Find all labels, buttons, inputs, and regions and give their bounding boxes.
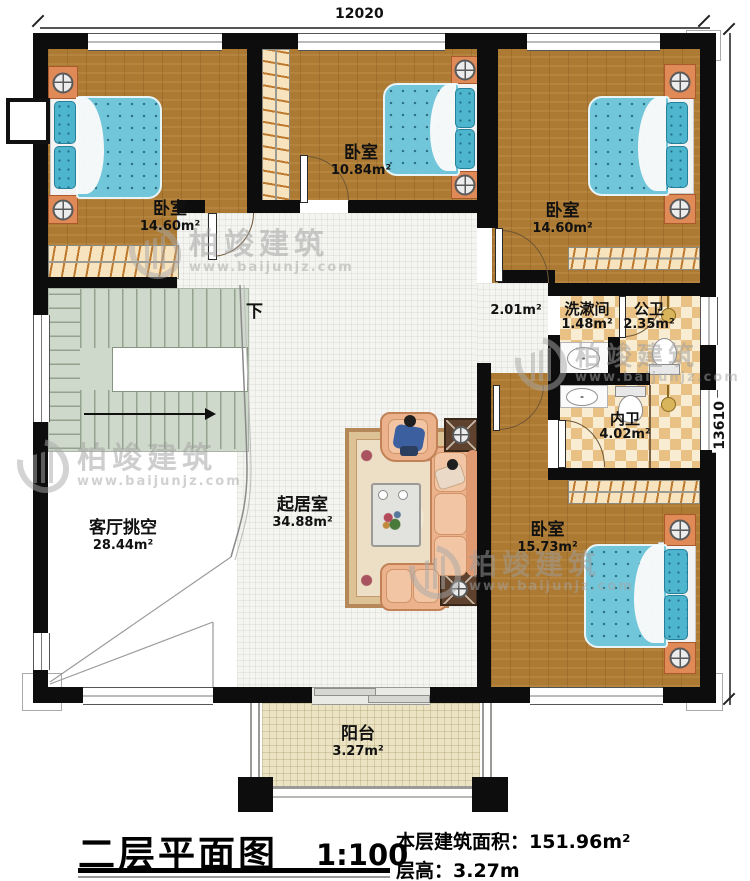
window-right-publicwc <box>700 297 718 345</box>
wall-bedroom-tr-west <box>477 49 498 228</box>
floor-plan-page: 12020 13610 <box>0 0 750 881</box>
window-top-3 <box>527 33 660 51</box>
lamp-icon <box>452 426 470 444</box>
room-area: 3.27m² <box>332 745 383 760</box>
ensuite-door-leaf <box>558 420 566 468</box>
window-bottom-void <box>83 687 213 705</box>
wall-bathroom-north <box>548 283 716 296</box>
shower-head-icon <box>661 397 676 412</box>
nightstand <box>48 66 78 99</box>
room-label-public-wc: 公卫 2.35m² <box>614 301 684 333</box>
room-label-bedroom-tm: 卧室 10.84m² <box>315 144 407 178</box>
nightstand <box>664 642 696 674</box>
wall-bathroom-middle <box>548 373 650 385</box>
side-table <box>444 418 478 452</box>
room-area: 2.35m² <box>623 318 674 333</box>
person-legs <box>400 446 418 456</box>
sofa-cushion <box>434 536 467 576</box>
balcony-door-panel <box>368 695 430 703</box>
nightstand <box>664 514 696 546</box>
room-area: 14.60m² <box>532 222 592 237</box>
wall-bedrooms-tl-tm <box>247 49 262 200</box>
ensuite-sink <box>566 388 598 406</box>
lamp-icon <box>455 175 476 196</box>
room-area: 4.02m² <box>599 428 650 443</box>
pillow <box>54 101 76 144</box>
room-label-ensuite: 内卫 4.02m² <box>589 411 661 443</box>
washroom-sink <box>567 347 600 370</box>
bedroom-tm-door-leaf <box>300 155 308 203</box>
room-label-washroom: 洗漱间 1.48m² <box>550 301 624 333</box>
room-label-bedroom-br: 卧室 15.73m² <box>500 521 595 555</box>
wall-exterior-right <box>700 33 716 703</box>
window-top-1 <box>88 33 222 51</box>
room-name: 卧室 <box>153 200 187 220</box>
stair-down-label: 下 <box>246 303 263 323</box>
side-table <box>440 572 478 606</box>
table-flowers <box>381 508 405 532</box>
public-wc-toilet-bowl <box>652 338 677 367</box>
room-name: 卧室 <box>344 144 378 164</box>
sofa-cushion <box>434 493 467 535</box>
dimension-right: 13610 <box>712 398 728 453</box>
wall-passage-west <box>477 363 491 687</box>
cup <box>398 490 408 500</box>
wall-bedroom-tl-south <box>33 277 177 288</box>
wall-ensuite-west-stub <box>548 385 560 420</box>
exterior-flue-box <box>6 98 50 144</box>
room-label-void: 客厅挑空 28.44m² <box>70 519 176 553</box>
lamp-icon <box>670 648 691 669</box>
room-name: 内卫 <box>610 411 640 428</box>
floor-height-value: 3.27m <box>453 860 520 881</box>
sofa-cushion <box>413 569 439 603</box>
lamp-icon <box>450 580 468 598</box>
room-label-bedroom-tr: 卧室 14.60m² <box>515 202 610 236</box>
wall-washroom-publicwc-stub-top <box>608 283 620 296</box>
room-area: 14.60m² <box>140 220 200 235</box>
room-label-living: 起居室 34.88m² <box>255 496 350 530</box>
lamp-icon <box>455 60 476 81</box>
lamp-icon <box>53 72 74 93</box>
room-name: 公卫 <box>634 301 664 318</box>
pillow <box>664 549 688 594</box>
nightstand <box>664 64 696 99</box>
room-name: 起居室 <box>277 496 328 516</box>
floor-area-line: 本层建筑面积：151.96m² <box>396 827 630 854</box>
bedroom-tr-door-leaf <box>495 228 503 282</box>
room-label-corridor: 2.01m² <box>480 304 552 319</box>
floor-height-label: 层高： <box>396 860 453 881</box>
lamp-icon <box>670 71 691 92</box>
pillow <box>666 102 688 144</box>
room-area: 1.48m² <box>561 318 612 333</box>
balcony-post-right <box>472 777 508 812</box>
wall-washroom-publicwc-stub-bottom <box>608 337 620 375</box>
public-wc-toilet-tank <box>649 364 680 375</box>
balcony-door-panel <box>314 688 376 696</box>
room-name: 洗漱间 <box>564 301 609 318</box>
window-top-2 <box>298 33 445 51</box>
room-label-bedroom-tl: 卧室 14.60m² <box>120 200 220 234</box>
room-name: 客厅挑空 <box>89 519 157 539</box>
balcony-post-left <box>238 777 273 812</box>
person-head <box>447 459 458 470</box>
pillow <box>455 88 475 128</box>
cup <box>378 490 388 500</box>
lamp-icon <box>670 520 691 541</box>
lamp-icon <box>53 199 74 220</box>
stair-direction-text: 下 <box>246 303 263 323</box>
drawing-scale: 1:100 <box>316 838 408 872</box>
wall-hall-north-c <box>348 200 492 213</box>
window-bottom-bedroom-br <box>530 687 663 705</box>
nightstand <box>48 195 78 224</box>
floor-area-value: 151.96m² <box>529 831 630 853</box>
dimension-top: 12020 <box>332 6 387 22</box>
room-label-balcony: 阳台 3.27m² <box>310 725 406 759</box>
pillow <box>455 129 475 169</box>
window-left-1 <box>33 315 50 422</box>
nightstand <box>664 194 696 224</box>
sofa-cushion <box>386 569 412 603</box>
wall-ensuite-south <box>548 468 716 480</box>
nightstand <box>451 56 479 84</box>
pillow <box>664 595 688 640</box>
title-underline-thin <box>78 876 390 878</box>
room-name: 卧室 <box>531 521 565 541</box>
floor-height-line: 层高：3.27m <box>396 856 520 881</box>
room-name: 阳台 <box>341 725 375 745</box>
room-area: 34.88m² <box>272 516 332 531</box>
person-head <box>404 415 416 427</box>
room-area: 10.84m² <box>331 164 391 179</box>
passage-door-leaf <box>493 385 500 431</box>
room-area: 28.44m² <box>93 539 153 554</box>
lamp-icon <box>670 199 691 220</box>
room-name: 卧室 <box>546 202 580 222</box>
pillow <box>666 146 688 188</box>
room-area: 15.73m² <box>517 541 577 556</box>
wall-hall-north-b <box>247 200 300 213</box>
floor-area-label: 本层建筑面积： <box>396 831 529 853</box>
pillow <box>54 146 76 189</box>
room-area: 2.01m² <box>490 304 541 319</box>
window-left-2 <box>33 633 50 670</box>
